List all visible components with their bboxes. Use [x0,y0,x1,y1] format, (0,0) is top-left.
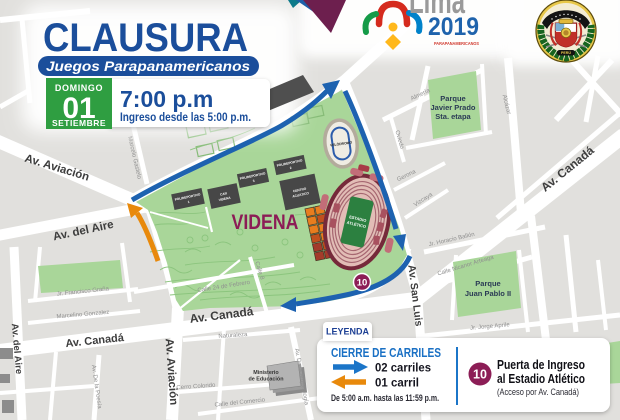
svg-text:10: 10 [357,278,368,289]
svg-text:PARAPANAMERICANOS: PARAPANAMERICANOS [434,41,480,47]
svg-text:01 carril: 01 carril [375,376,419,390]
svg-text:SETIEMBRE: SETIEMBRE [52,118,106,128]
svg-text:De 5:00 a.m. hasta las 11:59 p: De 5:00 a.m. hasta las 11:59 p.m. [331,393,439,403]
svg-text:Ministerio: Ministerio [253,370,279,376]
svg-text:al Estadio Atlético: al Estadio Atlético [497,372,585,386]
svg-text:Puerta de Ingreso: Puerta de Ingreso [497,358,585,372]
svg-text:02 carriles: 02 carriles [375,361,431,375]
svg-text:de Educación: de Educación [248,377,283,383]
svg-text:LEYENDA: LEYENDA [326,327,370,337]
svg-text:Parque: Parque [475,279,500,288]
svg-text:Ingreso desde las 5:00 p.m.: Ingreso desde las 5:00 p.m. [120,112,251,124]
svg-text:VIDENA: VIDENA [232,211,299,234]
svg-text:Sta. etapa: Sta. etapa [435,112,471,121]
svg-text:CIERRE DE CARRILES: CIERRE DE CARRILES [331,345,441,360]
svg-text:7:00 p.m: 7:00 p.m [120,86,213,112]
svg-text:Parque: Parque [440,94,465,103]
svg-text:Juan Pablo II: Juan Pablo II [465,289,511,298]
svg-text:CLAUSURA: CLAUSURA [43,16,248,60]
svg-text:Javier Prado: Javier Prado [430,103,475,112]
svg-text:10: 10 [473,368,487,382]
svg-text:(Acceso por Av. Canadá): (Acceso por Av. Canadá) [497,387,579,398]
svg-text:PERÚ: PERÚ [561,50,571,55]
svg-text:2019: 2019 [428,13,479,41]
svg-text:Juegos Parapanamericanos: Juegos Parapanamericanos [46,58,250,74]
